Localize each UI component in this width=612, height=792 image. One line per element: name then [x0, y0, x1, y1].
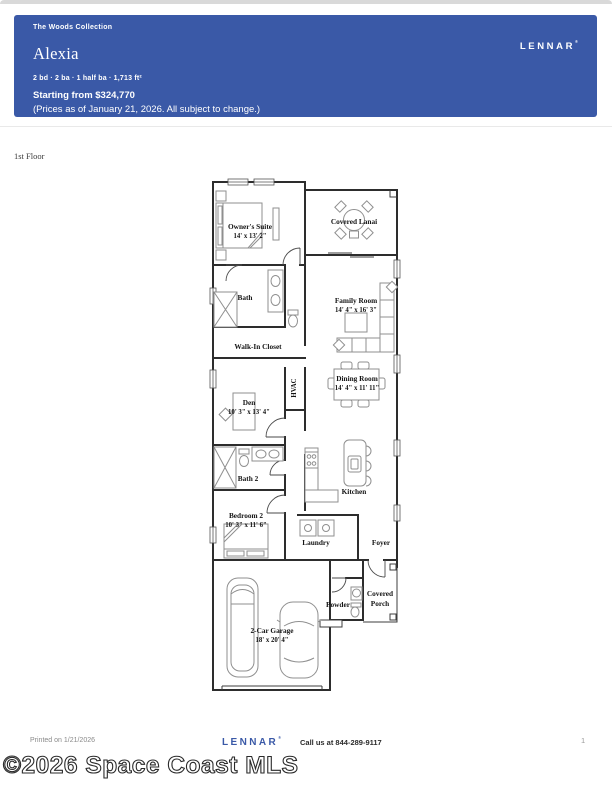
room-label-hvac: HVAC — [291, 378, 298, 397]
price-note: (Prices as of January 21, 2026. All subj… — [33, 104, 578, 115]
mls-watermark-text: ©2026 Space Coast MLS — [3, 752, 298, 779]
room-label-foyer: Foyer — [372, 538, 391, 547]
room-label-garage: 2-Car Garage — [250, 626, 294, 635]
header-divider — [0, 126, 612, 127]
footer-registered-mark: ® — [278, 735, 281, 740]
floorplan-drawing: Owner's Suite 14' x 13' 2" Covered Lanai… — [203, 176, 407, 698]
room-label-covered-lanai: Covered Lanai — [331, 217, 377, 226]
room-label-kitchen: Kitchen — [342, 487, 367, 496]
room-dims-owners-suite: 14' x 13' 2" — [233, 233, 266, 240]
powder-fixtures — [351, 587, 362, 617]
room-label-covered-porch-line1: Covered — [367, 589, 393, 598]
collection-name: The Woods Collection — [33, 24, 578, 31]
bed-bedroom2 — [224, 524, 268, 558]
room-label-covered-porch-line2: Porch — [371, 599, 390, 608]
room-label-bath: Bath — [237, 293, 252, 302]
room-dims-garage: 18' x 20' 4" — [255, 637, 288, 644]
room-label-den: Den — [243, 398, 256, 407]
room-label-bath2: Bath 2 — [238, 474, 259, 483]
room-label-powder: Powder — [326, 600, 351, 609]
mls-watermark: ©2026 Space Coast MLS — [0, 744, 330, 786]
room-dims-bedroom2: 10' 3" x 11' 6" — [225, 522, 267, 529]
laundry-machines — [300, 520, 334, 536]
registered-mark: ® — [575, 39, 578, 44]
starting-price: Starting from $324,770 — [33, 90, 578, 101]
header-banner: The Woods Collection LENNAR® Alexia 2 bd… — [14, 15, 597, 117]
family-room-sofa — [333, 281, 397, 352]
room-dims-dining-room: 14' 4" x 11' 11" — [335, 385, 380, 392]
room-label-owners-suite: Owner's Suite — [228, 222, 273, 231]
room-dims-den: 10' 3" x 13' 4" — [228, 409, 270, 416]
room-dims-family-room: 14' 4" x 16' 3" — [335, 307, 377, 314]
page-top-edge — [0, 0, 612, 4]
room-label-laundry: Laundry — [302, 538, 330, 547]
room-label-dining-room: Dining Room — [336, 374, 378, 383]
plan-name: Alexia — [33, 44, 578, 64]
room-label-bedroom2: Bedroom 2 — [229, 511, 263, 520]
lennar-logo: LENNAR® — [520, 39, 578, 52]
floor-label: 1st Floor — [14, 151, 44, 161]
room-label-family-room: Family Room — [335, 296, 377, 305]
lennar-logo-text: LENNAR — [520, 41, 575, 52]
plan-specs: 2 bd · 2 ba · 1 half ba · 1,713 ft² — [33, 75, 578, 82]
room-label-walk-in-closet: Walk-In Closet — [234, 342, 282, 351]
page-number: 1 — [581, 736, 585, 745]
printed-date: Printed on 1/21/2026 — [30, 737, 95, 744]
